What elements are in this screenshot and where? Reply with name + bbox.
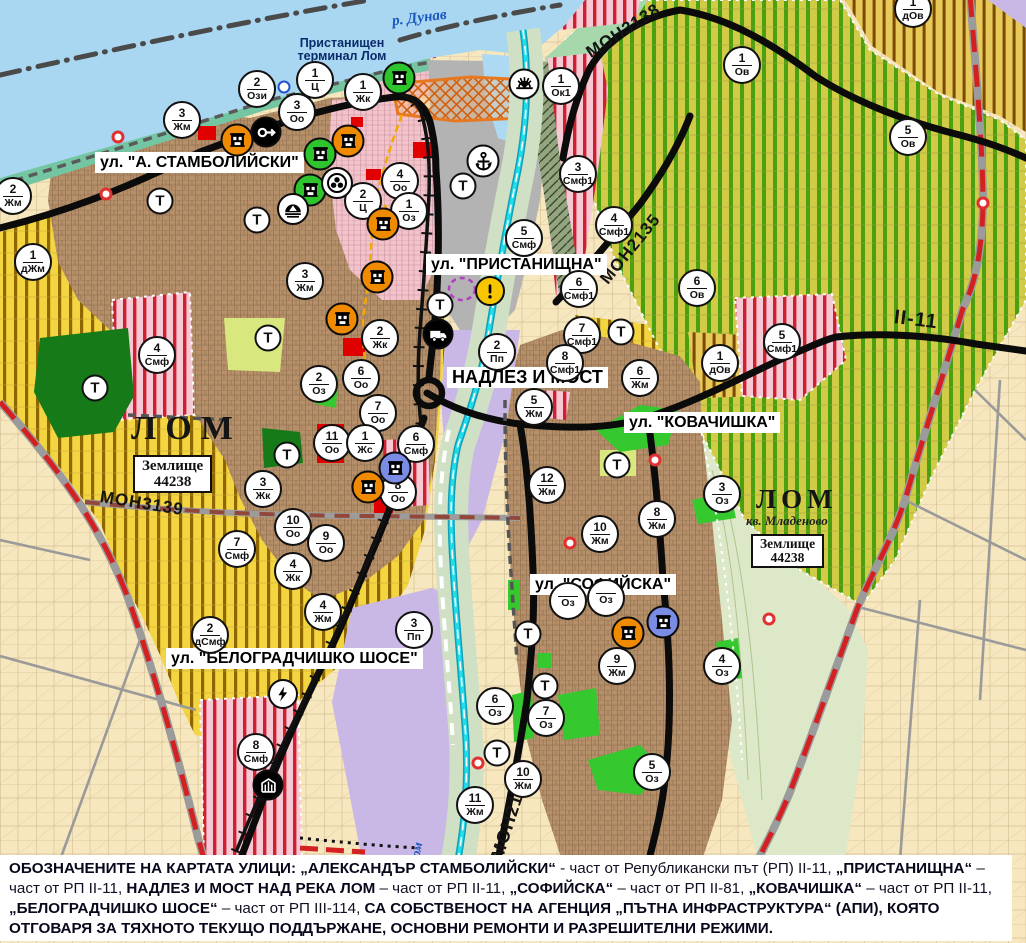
zone-marker: 8Смф1: [546, 344, 584, 382]
zone-marker: 3Смф1: [559, 155, 597, 193]
zone-marker: 5Смф: [505, 219, 543, 257]
zone-number: 6: [694, 276, 701, 286]
zone-code: Смф1: [563, 176, 593, 186]
zone-code: Жк: [286, 573, 301, 583]
zone-number: 2: [254, 77, 261, 87]
zone-code: Смф1: [564, 291, 594, 301]
zone-number: 1: [360, 80, 367, 90]
zone-marker: 1Ов: [723, 46, 761, 84]
zone-number: 1: [406, 199, 413, 209]
zone-number: 11: [326, 431, 339, 441]
zone-code: Жк: [373, 340, 388, 350]
zone-marker: 1дОв: [701, 344, 739, 382]
t-marker: Т: [255, 325, 282, 352]
zone-number: 3: [179, 108, 186, 118]
footnote-segment: – част от РП II-81,: [617, 880, 748, 897]
zone-code: Смф: [512, 240, 536, 250]
footnote-segment: – част от РП II-11,: [866, 880, 992, 897]
zone-number: 2: [10, 184, 17, 194]
t-marker: Т: [274, 442, 301, 469]
zone-number: 3: [575, 162, 582, 172]
dot-icon: [977, 197, 990, 210]
zone-code: Оо: [286, 529, 301, 539]
zone-number: 5: [649, 760, 656, 770]
zone-number: 4: [611, 213, 618, 223]
t-marker: Т: [450, 173, 477, 200]
zone-code: Ок1: [551, 88, 570, 98]
zone-marker: 2Ози: [238, 70, 276, 108]
zone-number: 8: [253, 740, 260, 750]
monument-icon: [647, 606, 680, 639]
monument-icon: [304, 138, 337, 171]
zone-marker: 4Жм: [304, 593, 342, 631]
zone-marker: 6Смф1: [560, 270, 598, 308]
zone-marker: Оз: [549, 582, 587, 620]
monument-icon: [379, 452, 412, 485]
zone-marker: 4Смф: [138, 336, 176, 374]
footnote-bold-segment: „КОВАЧИШКА“: [749, 880, 867, 897]
zone-code: Жм: [631, 380, 648, 390]
dot-icon: [100, 188, 113, 201]
zone-code: Жм: [648, 521, 665, 531]
zone-code: Смф: [225, 551, 249, 561]
zone-number: 2: [316, 372, 323, 382]
zone-marker: 7Оз: [527, 699, 565, 737]
zone-code: Жм: [525, 409, 542, 419]
zone-code: Смф: [244, 754, 268, 764]
monument-icon: [612, 617, 645, 650]
zone-number: 2: [360, 189, 367, 199]
zone-marker: 5Ов: [889, 118, 927, 156]
zoning-map: р. Дунав Пристанищен терминал Лом ЛОМ Зе…: [0, 0, 1026, 943]
zone-code: Оо: [319, 545, 334, 555]
zone-marker: 1Жк: [344, 73, 382, 111]
zone-number: 3: [294, 100, 301, 110]
footnote-segment: – част от РП II-11,: [380, 880, 510, 897]
zone-number: 9: [614, 654, 621, 664]
zone-number: 1: [312, 68, 319, 78]
zone-code: Оо: [325, 445, 340, 455]
zone-code: Жм: [538, 487, 555, 497]
footnote-bold-segment: „БЕЛОГРАДЧИШКО ШОСЕ“: [9, 900, 222, 917]
zone-number: 1: [30, 250, 37, 260]
zone-marker: 5Смф1: [763, 323, 801, 361]
zone-code: Жм: [608, 668, 625, 678]
zone-number: 7: [579, 323, 586, 333]
zone-number: 1: [910, 0, 917, 7]
t-marker: Т: [515, 621, 542, 648]
zone-code: Жм: [314, 614, 331, 624]
dot-icon: [763, 613, 776, 626]
zone-code: Ов: [901, 139, 916, 149]
zone-number: 12: [540, 473, 553, 483]
zone-marker: 10Жм: [581, 515, 619, 553]
zone-marker: 1дОв: [894, 0, 932, 28]
dot-icon: [649, 454, 662, 467]
dot-icon: [564, 537, 577, 550]
zone-number: 2: [377, 326, 384, 336]
zone-number: 6: [576, 277, 583, 287]
zone-code: Жм: [4, 198, 21, 208]
zone-marker: 10Жм: [504, 760, 542, 798]
zone-number: 6: [492, 694, 499, 704]
zone-marker: 8Жм: [638, 500, 676, 538]
zone-code: Жм: [591, 536, 608, 546]
zone-number: 4: [719, 654, 726, 664]
truck-icon: [423, 319, 454, 350]
zone-number: 6: [637, 366, 644, 376]
zone-code: Жк: [356, 94, 371, 104]
zone-code: Оз: [488, 708, 501, 718]
zone-number: 7: [375, 401, 382, 411]
zone-code: Смф1: [550, 365, 580, 375]
zone-code: Оо: [354, 380, 369, 390]
zone-number: 1: [717, 351, 724, 361]
zone-code: Оз: [715, 668, 728, 678]
zone-marker: 2дСмф: [191, 616, 229, 654]
zone-code: Оо: [290, 114, 305, 124]
zone-number: 4: [290, 559, 297, 569]
zone-marker: 1Ок1: [542, 67, 580, 105]
zone-code: Оз: [539, 720, 552, 730]
zone-marker: 2Жм: [0, 177, 32, 215]
zone-marker: 3Оо: [278, 93, 316, 131]
t-marker: Т: [532, 673, 559, 700]
zone-marker: 3Пп: [395, 611, 433, 649]
warning-icon: [475, 276, 505, 306]
zone-code: Жм: [466, 807, 483, 817]
zone-number: 3: [719, 482, 726, 492]
zone-number: 3: [411, 618, 418, 628]
zone-code: Ози: [247, 91, 267, 101]
t-marker: Т: [147, 188, 174, 215]
zone-number: 8: [654, 507, 661, 517]
map-footnote: ОБОЗНАЧЕНИТЕ НА КАРТАТА УЛИЦИ: „АЛЕКСАНД…: [0, 855, 1012, 941]
zone-code: Пп: [490, 354, 504, 364]
anchor-icon: [467, 145, 500, 178]
zone-number: 7: [234, 537, 241, 547]
footnote-bold-segment: „СОФИЙСКА“: [510, 880, 618, 897]
zone-marker: 12Жм: [528, 466, 566, 504]
zone-number: 4: [320, 600, 327, 610]
zone-marker: 5Оз: [633, 753, 671, 791]
zone-code: Оз: [645, 774, 658, 784]
zone-code: Ов: [690, 290, 705, 300]
zone-code: Пп: [407, 632, 421, 642]
zone-number: 5: [905, 125, 912, 135]
zone-number: 6: [413, 432, 420, 442]
key-icon: [251, 117, 282, 148]
footnote-segment: - част от Републикански път (РП) II-11,: [560, 860, 836, 877]
dot-icon: [472, 757, 485, 770]
sun-icon: [509, 69, 540, 100]
zone-number: 10: [286, 515, 299, 525]
zone-marker: 1дЖм: [14, 243, 52, 281]
zone-marker: 1Жс: [346, 424, 384, 462]
zone-marker: 2Оз: [300, 365, 338, 403]
rotunda-icon: [321, 167, 353, 199]
zone-marker: Оз: [587, 579, 625, 617]
zone-marker: 2Жк: [361, 319, 399, 357]
zone-number: 2: [494, 340, 501, 350]
zone-code: Жм: [296, 283, 313, 293]
tunnel-icon: [277, 193, 309, 225]
zone-number: 3: [260, 477, 267, 487]
zone-code: Смф: [404, 446, 428, 456]
zone-marker: 11Жм: [456, 786, 494, 824]
zone-code: Смф1: [767, 344, 797, 354]
zone-number: 1: [362, 431, 369, 441]
t-marker: Т: [244, 207, 271, 234]
footnote-segment: – част от РП III-114,: [222, 900, 365, 917]
t-marker: Т: [608, 319, 635, 346]
footnote-bold-segment: ОБОЗНАЧЕНИТЕ НА КАРТАТА УЛИЦИ: „АЛЕКСАНД…: [9, 860, 560, 877]
zone-code: Оз: [561, 598, 574, 608]
zone-code: Жк: [256, 491, 271, 501]
zone-code: Оз: [599, 595, 612, 605]
zone-code: Оо: [391, 494, 406, 504]
zone-marker: 3Жм: [163, 101, 201, 139]
t-marker: Т: [427, 292, 454, 319]
zone-number: 4: [154, 343, 161, 353]
footnote-bold-segment: „ПРИСТАНИЩНА“: [836, 860, 977, 877]
monument-icon: [361, 261, 394, 294]
zone-code: дСмф: [194, 637, 225, 647]
t-marker: Т: [604, 452, 631, 479]
zone-number: 2: [207, 623, 214, 633]
zone-marker: 8Смф: [237, 733, 275, 771]
zone-marker: 4Оз: [703, 647, 741, 685]
zone-marker: 3Жк: [244, 470, 282, 508]
monument-icon: [326, 303, 359, 336]
zone-code: дЖм: [21, 264, 45, 274]
monument-icon: [383, 62, 416, 95]
footnote-bold-segment: НАДЛЕЗ И МОСТ НАД РЕКА ЛОМ: [126, 880, 379, 897]
zone-number: 10: [593, 522, 606, 532]
zone-number: 1: [558, 74, 565, 84]
zone-code: Оо: [371, 415, 386, 425]
lightning-icon: [268, 679, 298, 709]
zone-marker: 7Смф: [218, 530, 256, 568]
zone-code: Жм: [514, 781, 531, 791]
zone-code: Ов: [735, 67, 750, 77]
zone-code: Смф: [145, 357, 169, 367]
zone-marker: 2Пп: [478, 333, 516, 371]
ring-icon: [278, 81, 291, 94]
zone-number: 9: [323, 531, 330, 541]
zone-number: 11: [469, 793, 482, 803]
zone-code: дОв: [902, 11, 923, 21]
zone-marker: 6Ов: [678, 269, 716, 307]
map-markers: 2Ози1Ц1Жк3Оо3Жм2Жм1дЖм4Оо2Ц1Оз3Жм1Ок11Ов…: [0, 0, 1026, 943]
dot-icon: [112, 131, 125, 144]
zone-code: Ц: [311, 82, 319, 92]
zone-code: Смф1: [599, 227, 629, 237]
zone-number: 5: [779, 330, 786, 340]
zone-code: Оз: [402, 213, 415, 223]
zone-marker: 9Оо: [307, 524, 345, 562]
zone-marker: 3Оз: [703, 475, 741, 513]
zone-number: 5: [531, 395, 538, 405]
zone-marker: 6Оз: [476, 687, 514, 725]
zone-number: 7: [543, 706, 550, 716]
monument-icon: [221, 124, 254, 157]
t-marker: Т: [82, 375, 109, 402]
zone-code: дОв: [709, 365, 730, 375]
monument-icon: [367, 208, 400, 241]
zone-code: Жм: [173, 122, 190, 132]
zone-marker: 5Жм: [515, 388, 553, 426]
zone-marker: 9Жм: [598, 647, 636, 685]
zone-marker: 4Смф1: [595, 206, 633, 244]
zone-number: 3: [302, 269, 309, 279]
footnote-text: ОБОЗНАЧЕНИТЕ НА КАРТАТА УЛИЦИ: „АЛЕКСАНД…: [9, 860, 992, 937]
rail-crossing-icon: [253, 770, 284, 801]
zone-number: 1: [739, 53, 746, 63]
zone-marker: 6Оо: [342, 359, 380, 397]
zone-marker: 4Жк: [274, 552, 312, 590]
zone-number: 5: [521, 226, 528, 236]
zone-marker: 6Жм: [621, 359, 659, 397]
zone-number: 4: [397, 169, 404, 179]
zone-marker: 3Жм: [286, 262, 324, 300]
zone-number: 8: [562, 351, 569, 361]
zone-code: Оз: [715, 496, 728, 506]
t-marker: Т: [484, 740, 511, 767]
zone-code: Оз: [312, 386, 325, 396]
zone-code: Жс: [357, 445, 372, 455]
zone-code: Ц: [359, 203, 367, 213]
zone-number: 10: [516, 767, 529, 777]
zone-number: 6: [358, 366, 365, 376]
